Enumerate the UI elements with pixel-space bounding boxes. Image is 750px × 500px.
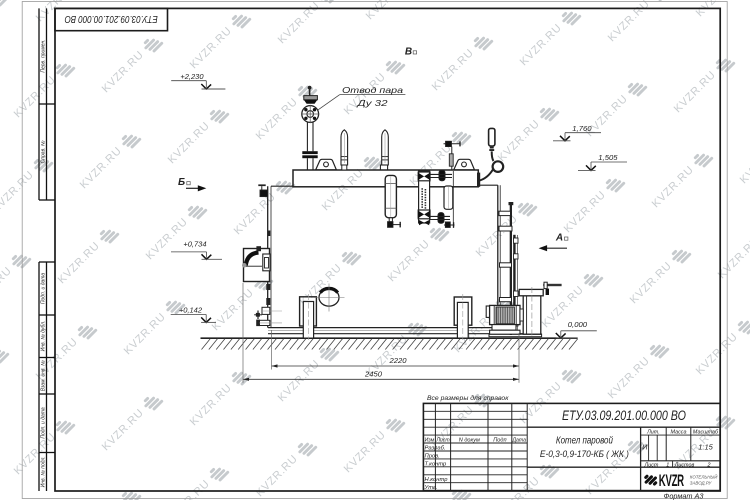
svg-text:А: А [555,233,563,244]
svg-text:И: И [642,442,648,451]
svg-text:Разраб.: Разраб. [425,445,446,451]
svg-text:ЗАВОД.РУ: ЗАВОД.РУ [690,481,713,486]
svg-text:1,760: 1,760 [572,124,591,133]
svg-text:Утв.: Утв. [424,485,438,491]
svg-text:1: 1 [666,462,669,468]
svg-text:Подп. и дата: Подп. и дата [41,273,47,305]
svg-text:Лист: Лист [644,462,659,468]
svg-text:Масштаб: Масштаб [693,429,719,435]
svg-text:+0,142: +0,142 [179,306,202,315]
svg-text:Котел паровой: Котел паровой [556,436,613,447]
svg-text:Изм: Изм [425,437,435,443]
svg-text:Перв. примен.: Перв. примен. [41,39,47,72]
svg-text:Подп. и дата: Подп. и дата [41,407,47,439]
svg-text:Т.контр: Т.контр [425,461,448,467]
svg-text:Листов: Листов [674,462,695,468]
svg-text:2220: 2220 [388,356,406,365]
svg-text:Инв. № подл.: Инв. № подл. [41,456,47,487]
svg-text:Формат А3: Формат А3 [664,491,704,500]
svg-text:Взам. инв. №: Взам. инв. № [41,360,47,392]
svg-text:Масса: Масса [671,429,687,435]
svg-text:KVZR: KVZR [659,472,684,490]
svg-text:Лит.: Лит. [646,429,660,435]
svg-text:0,000: 0,000 [568,320,587,329]
svg-text:Все размеры для справок: Все размеры для справок [427,394,509,402]
svg-text:В: В [405,47,412,58]
svg-text:1:15: 1:15 [698,442,713,451]
svg-text:N докум: N докум [459,437,480,443]
svg-text:Справ. №: Справ. № [41,140,47,163]
svg-text:КОТЕЛЬНЫЙ: КОТЕЛЬНЫЙ [690,475,718,480]
svg-text:1,505: 1,505 [598,153,618,162]
svg-text:2: 2 [707,462,711,468]
svg-text:ЕТУ.03.09.201.00.000 ВО: ЕТУ.03.09.201.00.000 ВО [562,408,686,423]
svg-text:+2,230: +2,230 [180,72,203,81]
svg-text:Ду 32: Ду 32 [356,98,388,108]
svg-text:Подп: Подп [493,437,506,443]
svg-text:2450: 2450 [364,370,382,379]
svg-text:Лист: Лист [435,437,450,443]
svg-text:Инв. № дубл.: Инв. № дубл. [41,321,47,352]
svg-text:Дата: Дата [511,437,526,443]
svg-text:Н.контр: Н.контр [425,477,449,483]
svg-text:Отвод пара: Отвод пара [342,85,403,95]
svg-text:+0,734: +0,734 [183,239,206,248]
svg-text:ЕТУ.03.09.201.00.000 ВО: ЕТУ.03.09.201.00.000 ВО [64,13,157,24]
svg-text:Б: Б [178,177,185,188]
svg-text:Пров.: Пров. [425,453,440,459]
svg-text:Е-0,3-0,9-170-КБ ( ЖК ): Е-0,3-0,9-170-КБ ( ЖК ) [540,449,629,459]
